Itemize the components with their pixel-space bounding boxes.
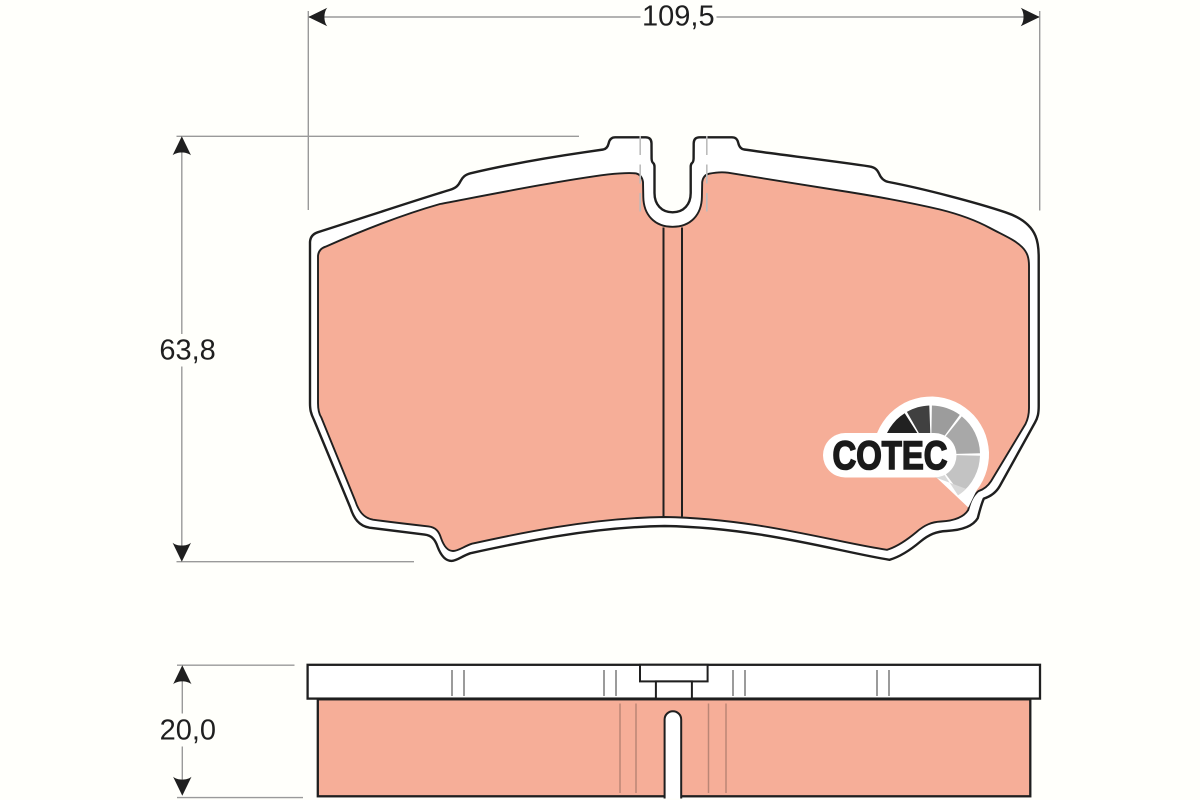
svg-text:63,8: 63,8: [159, 335, 215, 367]
svg-text:20,0: 20,0: [160, 715, 216, 747]
svg-text:COTEC: COTEC: [833, 434, 948, 478]
svg-text:109,5: 109,5: [642, 1, 715, 33]
